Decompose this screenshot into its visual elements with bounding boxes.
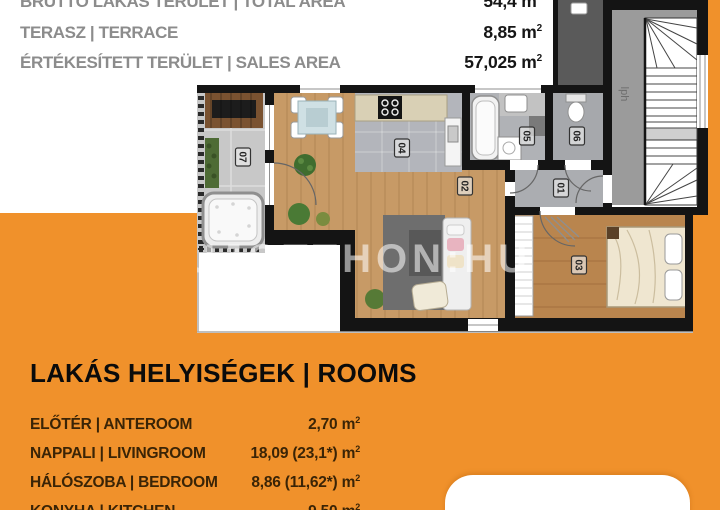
svg-text:03: 03: [573, 259, 584, 271]
bedroom-label: 03: [572, 256, 587, 274]
stove: [378, 96, 402, 119]
room-label: NAPPALI | LIVINGROOM: [30, 445, 206, 463]
staircase-label: lph: [618, 87, 630, 102]
kitchen-label: 04: [395, 139, 410, 157]
watermark: UJOTTHON:HU: [197, 237, 532, 281]
terrace-label: 07: [236, 148, 251, 166]
bathroom-sink: [505, 95, 527, 112]
room-label: HÁLÓSZOBA | BEDROOM: [30, 474, 218, 492]
svg-text:05: 05: [521, 130, 532, 142]
toilet-bowl: [568, 102, 584, 122]
floorplan-image: 07 04 05 06 01 02: [197, 0, 710, 345]
pillow: [665, 234, 682, 264]
plant: [365, 289, 385, 309]
pillow: [665, 270, 682, 300]
rooms-panel: LAKÁS HELYISÉGEK | ROOMS ELŐTÉR | ANTERO…: [0, 345, 440, 510]
livingroom-label: 02: [458, 177, 473, 195]
logo-box: [445, 475, 690, 510]
white-spacer: [0, 85, 197, 213]
sofa-cushion: [447, 225, 464, 235]
nightstand: [607, 227, 619, 239]
room-row-kitchen: KONYHA | KITCHEN 9,50 m2: [30, 502, 360, 510]
terrace-table: [212, 100, 256, 118]
bathtub-inner: [476, 101, 495, 155]
plant: [288, 203, 310, 225]
svg-text:07: 07: [237, 151, 248, 163]
plant: [316, 212, 330, 226]
room-value: 9,50 m2: [308, 502, 360, 510]
flyer-page: BRUTTÓ LAKÁS TERÜLET | TOTAL AREA 54,4 m…: [0, 0, 720, 510]
svg-text:06: 06: [571, 130, 582, 142]
washing-machine: [498, 137, 521, 160]
toilet-tank: [566, 94, 586, 102]
room-value: 2,70 m2: [308, 415, 360, 434]
anteroom-label: 01: [554, 179, 569, 197]
room-row-bedroom: HÁLÓSZOBA | BEDROOM 8,86 (11,62*) m2: [30, 473, 360, 493]
room-label: ELŐTÉR | ANTEROOM: [30, 416, 192, 434]
stairs-landing: [645, 128, 697, 140]
upper-fixture: [571, 3, 587, 14]
plant: [294, 154, 316, 176]
room-row-anteroom: ELŐTÉR | ANTEROOM 2,70 m2: [30, 415, 360, 435]
room-label: KONYHA | KITCHEN: [30, 503, 175, 510]
svg-text:04: 04: [396, 142, 407, 154]
rooms-title: LAKÁS HELYISÉGEK | ROOMS: [30, 358, 417, 389]
room-value: 8,86 (11,62*) m2: [251, 473, 360, 492]
room-row-livingroom: NAPPALI | LIVINGROOM 18,09 (23,1*) m2: [30, 444, 360, 464]
glass-table-center: [306, 108, 328, 127]
svg-text:01: 01: [555, 182, 566, 194]
kitchen-sink: [448, 126, 458, 142]
svg-text:02: 02: [459, 180, 470, 192]
bathroom-label: 05: [520, 127, 535, 145]
stairs-upper: [645, 18, 697, 128]
metric-label: TERASZ | TERRACE: [20, 23, 178, 43]
stairs-lower: [645, 140, 697, 205]
wc-label: 06: [570, 127, 585, 145]
armchair: [411, 281, 448, 311]
room-value: 18,09 (23,1*) m2: [250, 444, 360, 463]
dining-set: [291, 97, 343, 138]
